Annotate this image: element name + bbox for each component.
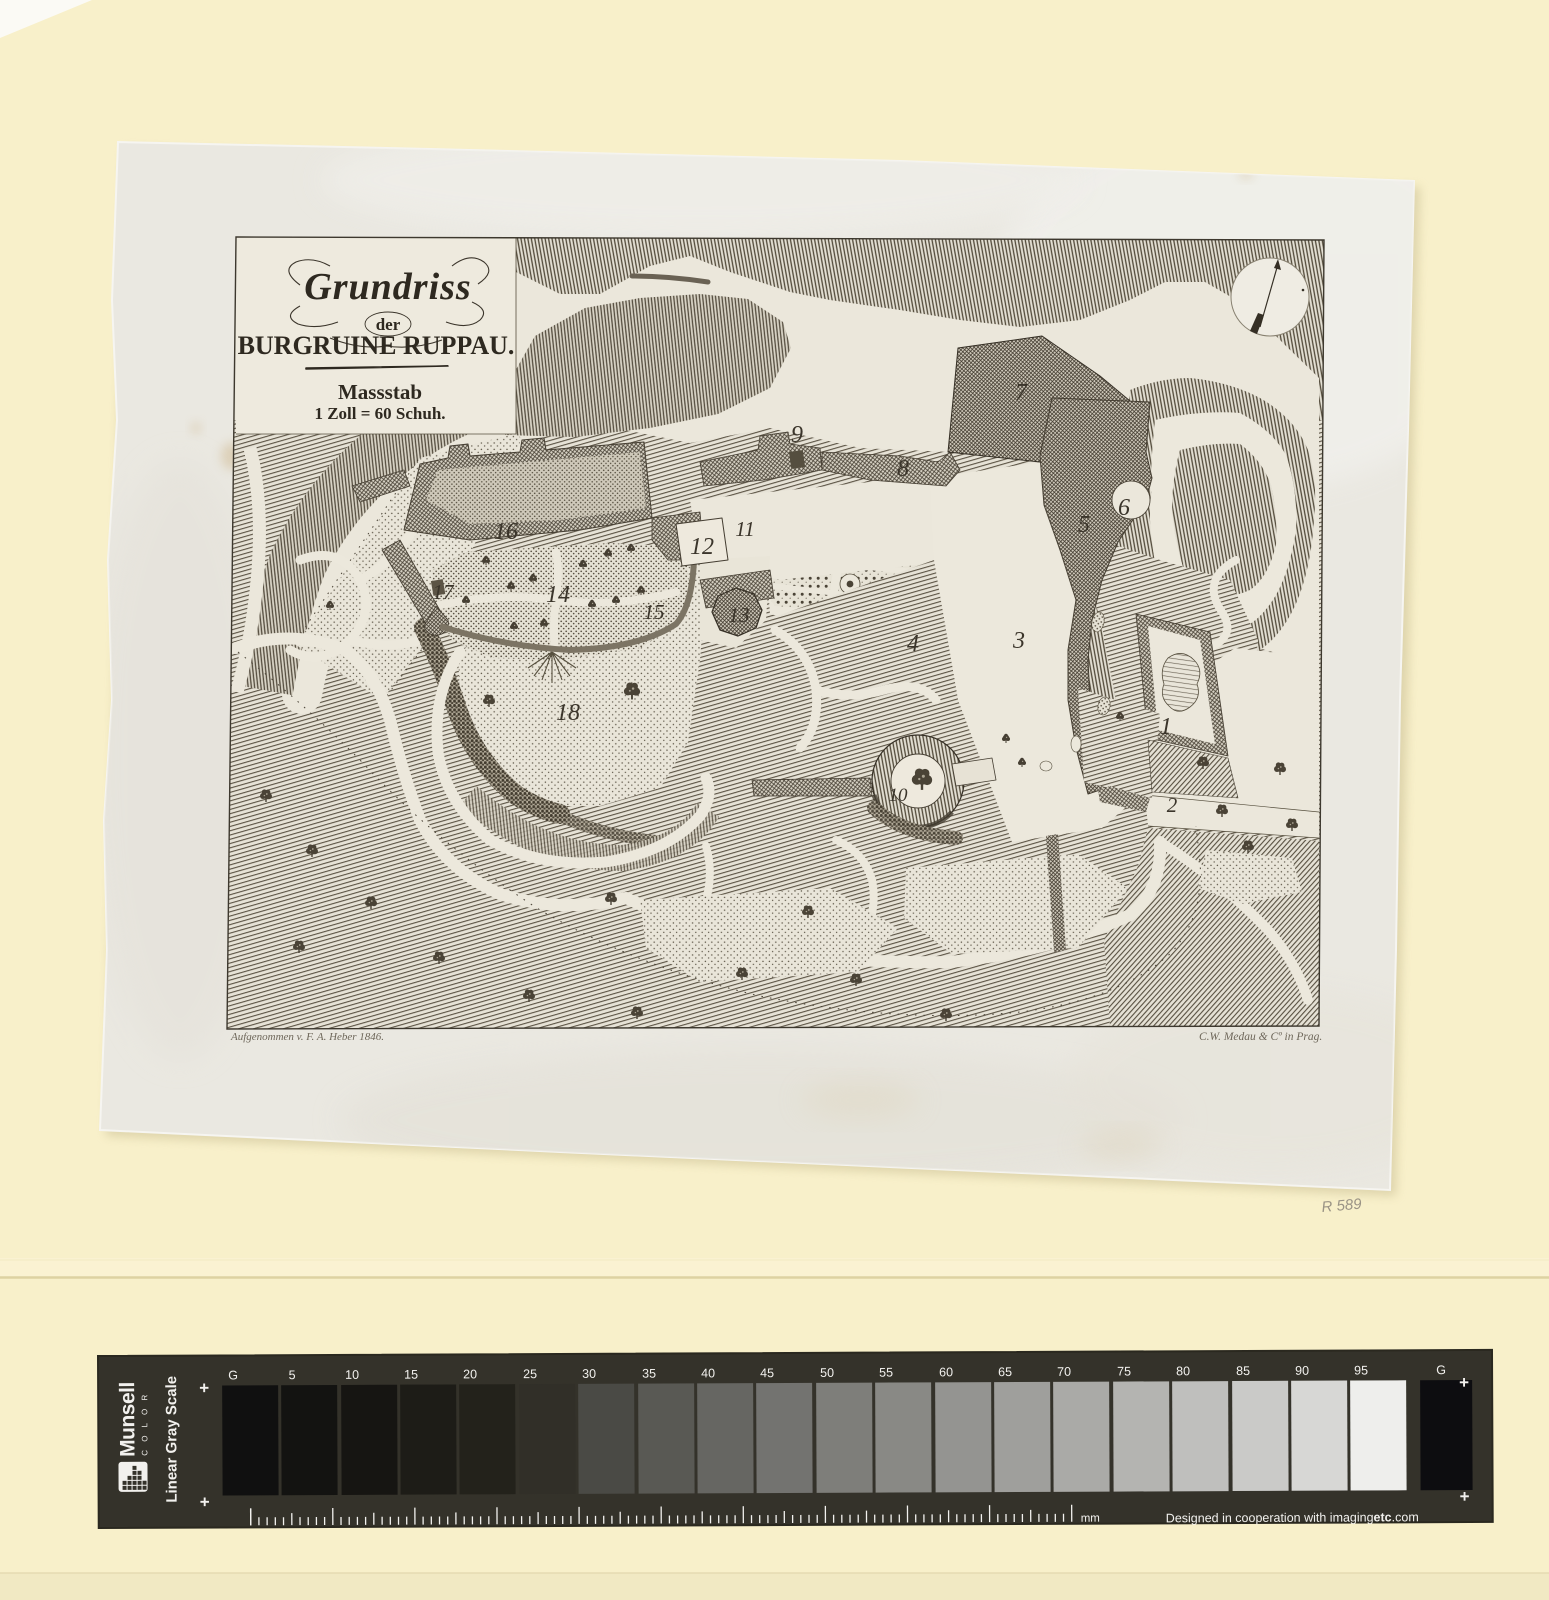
svg-text:G: G: [228, 1368, 238, 1382]
svg-text:90: 90: [1295, 1364, 1309, 1378]
svg-text:+: +: [199, 1379, 209, 1398]
svg-text:30: 30: [582, 1367, 596, 1381]
svg-text:15: 15: [644, 600, 665, 624]
svg-text:45: 45: [760, 1366, 774, 1380]
svg-text:95: 95: [1354, 1363, 1368, 1377]
svg-text:18: 18: [556, 700, 580, 726]
svg-text:mm: mm: [1081, 1513, 1100, 1525]
svg-text:Aufgenommen v. F. A. Heber 184: Aufgenommen v. F. A. Heber 1846.: [230, 1031, 384, 1043]
svg-text:8: 8: [897, 456, 909, 482]
svg-text:10: 10: [889, 785, 909, 806]
svg-text:6: 6: [1118, 495, 1130, 521]
svg-text:35: 35: [642, 1367, 656, 1381]
svg-text:13: 13: [729, 603, 750, 627]
svg-text:+: +: [1459, 1373, 1469, 1392]
svg-text:65: 65: [998, 1365, 1012, 1379]
svg-text:70: 70: [1057, 1365, 1071, 1379]
svg-text:15: 15: [404, 1368, 418, 1382]
svg-text:14: 14: [546, 582, 570, 608]
svg-text:5: 5: [1078, 512, 1090, 538]
svg-text:R 589: R 589: [1321, 1196, 1363, 1216]
svg-text:25: 25: [523, 1367, 537, 1381]
svg-text:11: 11: [735, 517, 754, 541]
svg-text:55: 55: [879, 1366, 893, 1380]
svg-text:2: 2: [1167, 793, 1178, 817]
svg-text:Designed in cooperation with i: Designed in cooperation with imagingetc.…: [1166, 1510, 1419, 1525]
svg-text:75: 75: [1117, 1364, 1131, 1378]
svg-text:40: 40: [701, 1366, 715, 1380]
svg-text:BURGRUINE RUPPAU.: BURGRUINE RUPPAU.: [238, 331, 515, 360]
svg-text:5: 5: [289, 1368, 296, 1382]
svg-text:12: 12: [690, 534, 714, 560]
svg-text:3: 3: [1012, 628, 1025, 654]
svg-text:85: 85: [1236, 1364, 1250, 1378]
svg-text:Munsell: Munsell: [116, 1382, 139, 1457]
svg-text:4: 4: [907, 631, 919, 657]
svg-text:+: +: [1460, 1487, 1470, 1506]
svg-text:C.W. Medau & Cº in Prag.: C.W. Medau & Cº in Prag.: [1199, 1031, 1322, 1043]
svg-text:Massstab: Massstab: [338, 380, 422, 404]
svg-text:+: +: [200, 1493, 210, 1512]
svg-text:20: 20: [463, 1367, 477, 1381]
svg-text:60: 60: [939, 1365, 953, 1379]
svg-text:7: 7: [1015, 380, 1028, 406]
svg-text:1: 1: [1160, 714, 1172, 740]
svg-text:Linear Gray Scale: Linear Gray Scale: [163, 1376, 181, 1503]
svg-text:1 Zoll = 60 Schuh.: 1 Zoll = 60 Schuh.: [314, 404, 445, 423]
svg-text:G: G: [1436, 1363, 1446, 1377]
svg-text:Grundriss: Grundriss: [304, 266, 471, 308]
svg-text:10: 10: [345, 1368, 359, 1382]
svg-text:9: 9: [791, 422, 803, 448]
svg-text:80: 80: [1176, 1364, 1190, 1378]
svg-text:C O L O R: C O L O R: [140, 1392, 149, 1456]
svg-text:16: 16: [494, 519, 518, 545]
svg-text:17: 17: [433, 580, 456, 604]
svg-text:50: 50: [820, 1366, 834, 1380]
